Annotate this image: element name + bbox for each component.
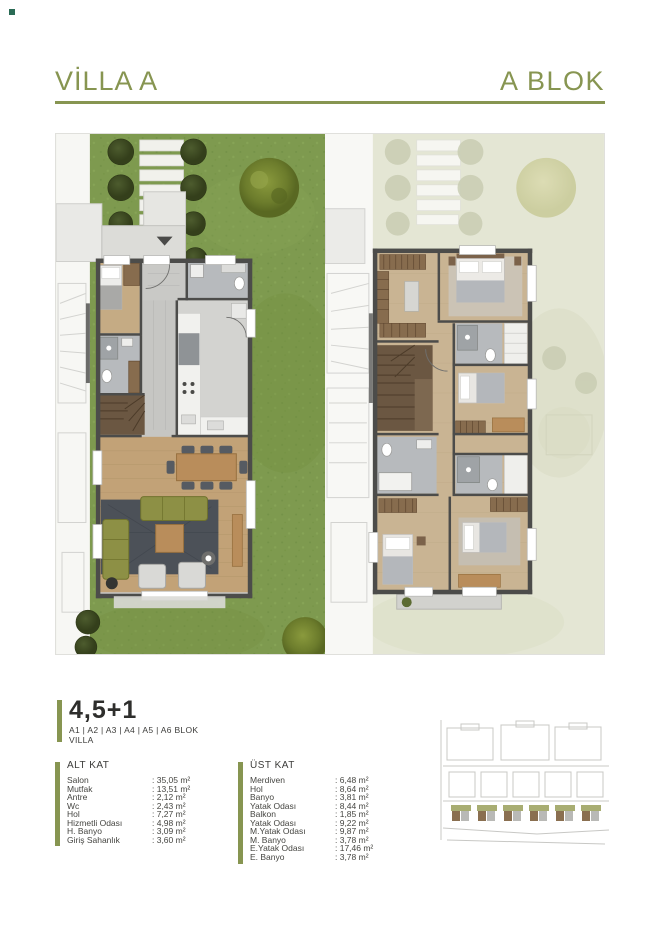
room-bath-1 — [456, 323, 528, 364]
table-row: Giriş Sahanlık: 3,60 m² — [67, 836, 225, 845]
corner-dot — [9, 9, 15, 15]
lower-floor-table: ALT KAT Salon: 35,05 m² Mutfak: 13,51 m²… — [55, 760, 225, 844]
upper-floor-table: ÜST KAT Merdiven: 6,48 m² Hol: 8,64 m² B… — [238, 760, 408, 861]
stairs-down — [98, 395, 145, 435]
room-wc — [98, 335, 140, 393]
header-rule — [55, 101, 605, 104]
room-h-banyo — [188, 263, 249, 299]
table-row: E. Banyo: 3,78 m² — [250, 853, 408, 862]
table-row: Mutfak: 13,51 m² — [67, 785, 225, 794]
upper-floor-rooms — [377, 253, 528, 592]
ground-floor-plan — [56, 134, 325, 654]
room-m-banyo — [377, 437, 437, 494]
table-row: Merdiven: 6,48 m² — [250, 776, 408, 785]
upper-floor-plan — [325, 134, 604, 654]
floor-plan-images — [55, 133, 605, 655]
accent-bar — [57, 700, 62, 742]
accent-bar — [55, 762, 60, 846]
lower-floor-title: ALT KAT — [67, 760, 225, 771]
upper-floor-title: ÜST KAT — [250, 760, 408, 771]
ground-floor-rooms — [98, 261, 250, 597]
unit-type-label: 4,5+1 — [69, 697, 198, 723]
unit-blocks-label: A1 | A2 | A3 | A4 | A5 | A6 BLOK — [69, 725, 198, 735]
table-row: Antre: 2,12 m² — [67, 793, 225, 802]
unit-category-label: VILLA — [69, 735, 198, 745]
room-hizmetli — [98, 263, 140, 334]
highlighted-villa-row — [451, 805, 601, 821]
table-row: Wc: 2,43 m² — [67, 802, 225, 811]
site-plan-thumbnail — [437, 712, 615, 848]
room-bath-2 — [456, 455, 528, 495]
stairs-up — [377, 345, 433, 431]
brochure-page: VİLLA A A BLOK — [0, 0, 660, 933]
accent-bar — [238, 762, 243, 864]
unit-type-block: 4,5+1 A1 | A2 | A3 | A4 | A5 | A6 BLOK V… — [57, 697, 198, 745]
room-salon — [98, 437, 248, 592]
room-master-bedroom — [449, 254, 523, 317]
neighbor-unit-outline-upper — [325, 134, 373, 654]
page-title-block: A BLOK — [500, 66, 605, 97]
page-title-villa: VİLLA A — [55, 66, 158, 97]
